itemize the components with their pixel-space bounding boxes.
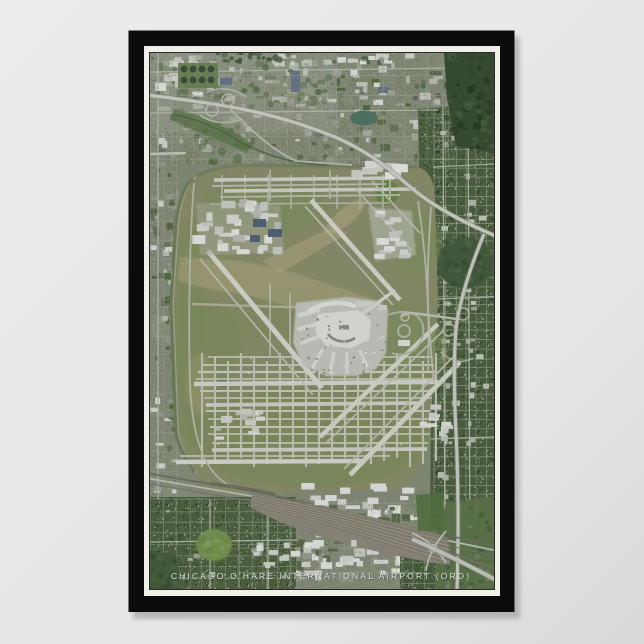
svg-text:CHICAGO O’HARE INTERNATIONAL A: CHICAGO O’HARE INTERNATIONAL AIRPORT (OR… bbox=[171, 571, 471, 581]
